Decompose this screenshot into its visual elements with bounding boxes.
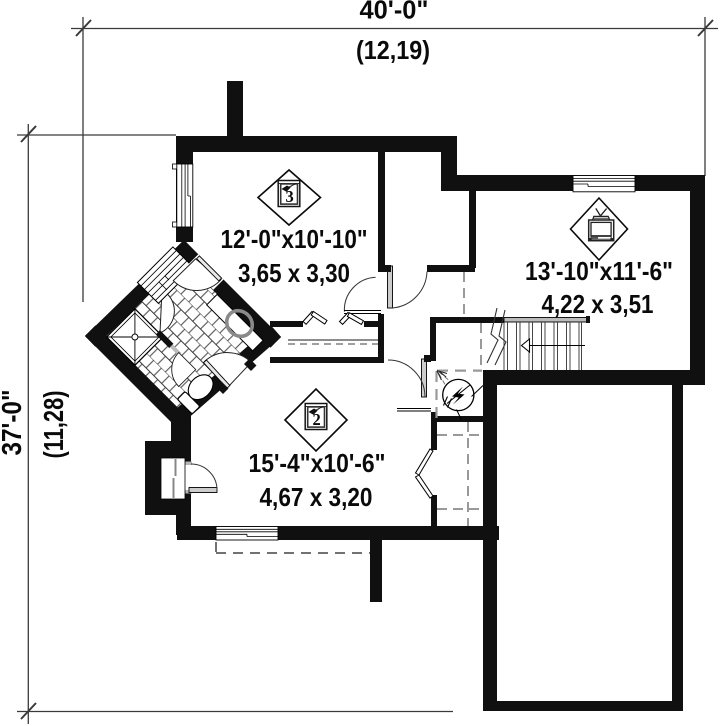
svg-text:2: 2 — [312, 410, 320, 429]
svg-text:13'-10"x11'-6": 13'-10"x11'-6" — [525, 256, 673, 286]
svg-text:3: 3 — [285, 187, 293, 206]
svg-text:15'-4"x10'-6": 15'-4"x10'-6" — [249, 448, 386, 478]
svg-text:4,22 x 3,51: 4,22 x 3,51 — [542, 289, 654, 319]
svg-text:37'-0": 37'-0" — [0, 390, 27, 456]
svg-text:40'-0": 40'-0" — [360, 0, 429, 25]
svg-text:(11,28): (11,28) — [38, 391, 69, 459]
svg-text:4,67 x 3,20: 4,67 x 3,20 — [260, 482, 373, 512]
svg-text:12'-0"x10'-10": 12'-0"x10'-10" — [221, 224, 368, 254]
svg-text:(12,19): (12,19) — [356, 35, 430, 65]
svg-text:3,65 x 3,30: 3,65 x 3,30 — [238, 258, 350, 288]
